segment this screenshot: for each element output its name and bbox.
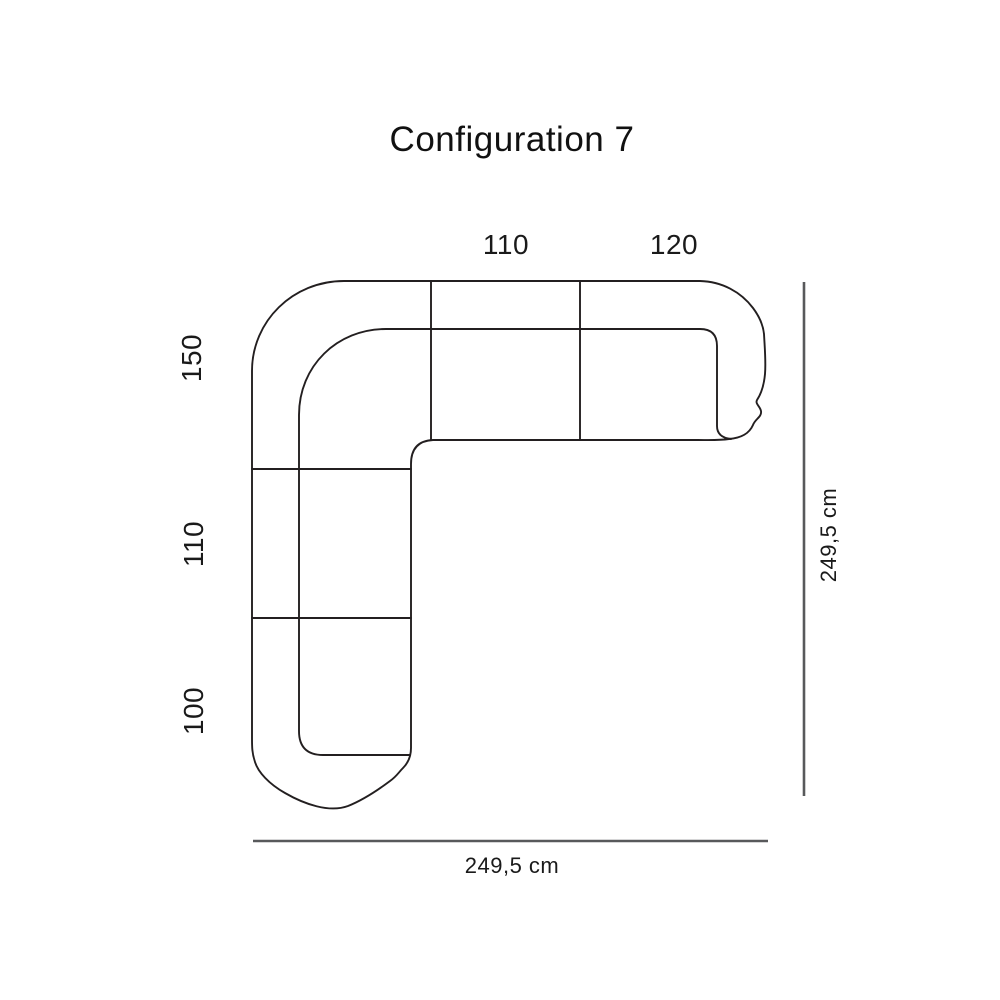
dim-label-top-110: 110: [483, 229, 529, 261]
dim-label-top-120: 120: [650, 229, 698, 261]
dim-label-left-110: 110: [178, 521, 210, 567]
configuration-diagram-page: Configuration 7 110 120 150 110 100 249,…: [0, 0, 1000, 1000]
total-width-label: 249,5 cm: [465, 853, 560, 879]
sofa-top-view-diagram: [0, 0, 1000, 1000]
sofa-backrest-line: [299, 329, 731, 755]
dim-label-left-100: 100: [178, 687, 210, 735]
dim-label-left-150: 150: [176, 334, 208, 382]
sofa-outer-outline: [252, 281, 765, 808]
total-depth-label: 249,5 cm: [816, 488, 842, 583]
